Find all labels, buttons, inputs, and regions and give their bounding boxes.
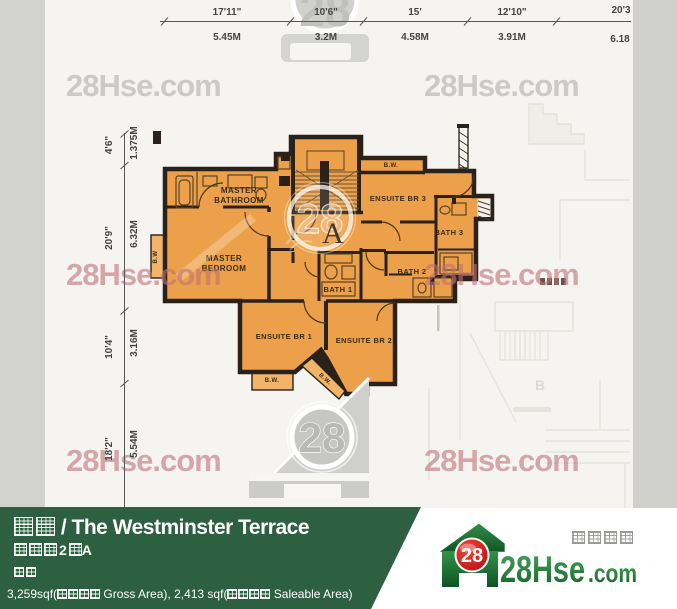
svg-text:12'10": 12'10" — [497, 7, 527, 18]
svg-text:BATHROOM: BATHROOM — [214, 196, 264, 205]
svg-text:28Hse.com: 28Hse.com — [424, 257, 579, 292]
svg-text:18'2": 18'2" — [104, 437, 115, 461]
svg-text:B: B — [535, 377, 545, 393]
svg-text:28Hse: 28Hse — [500, 549, 585, 590]
svg-text:4.58M: 4.58M — [401, 32, 429, 43]
svg-text:BATH 3: BATH 3 — [435, 228, 464, 237]
svg-text:28: 28 — [299, 0, 350, 36]
svg-text:10'4": 10'4" — [104, 335, 115, 359]
svg-text:28Hse.com: 28Hse.com — [424, 443, 579, 478]
svg-text:15': 15' — [408, 7, 422, 18]
svg-text:BATH 2: BATH 2 — [398, 267, 427, 276]
svg-text:28Hse.com: 28Hse.com — [66, 443, 221, 478]
svg-text:A: A — [322, 217, 344, 250]
svg-text:6.32M: 6.32M — [129, 220, 140, 248]
svg-text:20'9": 20'9" — [104, 226, 115, 250]
svg-text:3.91M: 3.91M — [498, 32, 526, 43]
svg-text:17'11": 17'11" — [213, 7, 242, 18]
svg-text:ENSUITE BR 3: ENSUITE BR 3 — [370, 194, 426, 203]
svg-text:5.54M: 5.54M — [129, 430, 140, 458]
svg-text:3.2M: 3.2M — [315, 32, 337, 43]
svg-text:ENSUITE BR 2: ENSUITE BR 2 — [336, 336, 392, 345]
svg-text:MASTER: MASTER — [221, 186, 257, 195]
svg-text:20'3: 20'3 — [611, 5, 631, 16]
svg-text:1.375M: 1.375M — [129, 126, 140, 159]
svg-text:4'6": 4'6" — [104, 136, 115, 155]
svg-text:28Hse.com: 28Hse.com — [66, 68, 221, 103]
svg-text:28Hse.com: 28Hse.com — [424, 68, 579, 103]
svg-text:ENSUITE BR 1: ENSUITE BR 1 — [256, 332, 312, 341]
svg-text:10'6": 10'6" — [314, 7, 338, 18]
svg-text:28: 28 — [299, 414, 346, 461]
svg-text:6.18: 6.18 — [610, 34, 630, 45]
svg-text:B.W.: B.W. — [265, 378, 280, 384]
svg-text:.com: .com — [588, 558, 637, 588]
svg-text:28Hse.com: 28Hse.com — [66, 257, 221, 292]
svg-text:28: 28 — [461, 545, 483, 567]
svg-text:5.45M: 5.45M — [213, 32, 241, 43]
svg-text:B.W.: B.W. — [384, 163, 399, 169]
svg-text:BATH 1: BATH 1 — [324, 285, 353, 294]
svg-text:3.16M: 3.16M — [129, 329, 140, 357]
